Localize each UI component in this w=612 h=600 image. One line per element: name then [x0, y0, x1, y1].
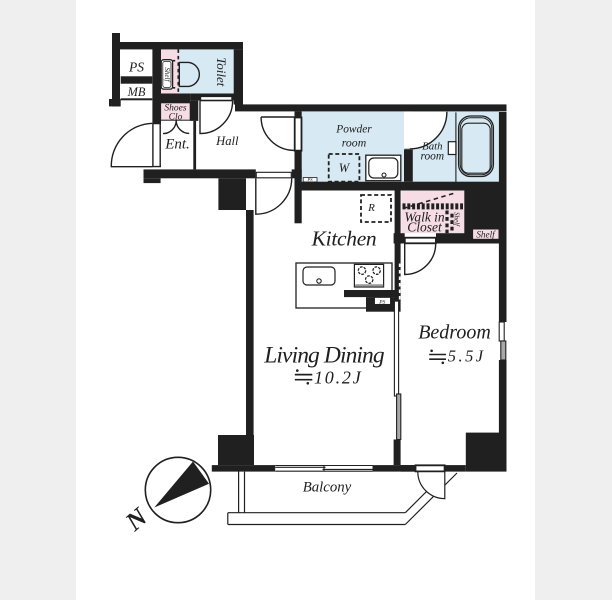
svg-text:R: R	[367, 202, 375, 214]
svg-text:PS: PS	[378, 299, 385, 305]
svg-text:Shelf: Shelf	[453, 212, 461, 227]
svg-text:Living Dining: Living Dining	[263, 343, 385, 369]
svg-text:MB: MB	[127, 85, 146, 99]
svg-text:Kitchen: Kitchen	[311, 226, 377, 250]
svg-text:Hall: Hall	[215, 134, 239, 148]
svg-text:Ent.: Ent.	[164, 137, 190, 153]
svg-text:Powder: Powder	[335, 124, 372, 136]
svg-text:Closet: Closet	[407, 220, 443, 235]
svg-text:Shelf: Shelf	[163, 67, 171, 82]
svg-text:10.2J: 10.2J	[314, 367, 363, 387]
svg-text:PS: PS	[128, 60, 144, 75]
svg-text:Balcony: Balcony	[303, 480, 352, 496]
svg-text:Bedroom: Bedroom	[418, 322, 491, 344]
svg-text:Clo: Clo	[169, 112, 183, 122]
svg-text:W: W	[339, 161, 351, 175]
svg-text:Shelf: Shelf	[476, 229, 496, 239]
svg-text:Toilet: Toilet	[214, 57, 229, 87]
svg-text:PS: PS	[306, 177, 313, 182]
svg-text:5.5J: 5.5J	[448, 346, 486, 365]
svg-text:room: room	[342, 136, 367, 150]
svg-text:room: room	[420, 151, 444, 163]
